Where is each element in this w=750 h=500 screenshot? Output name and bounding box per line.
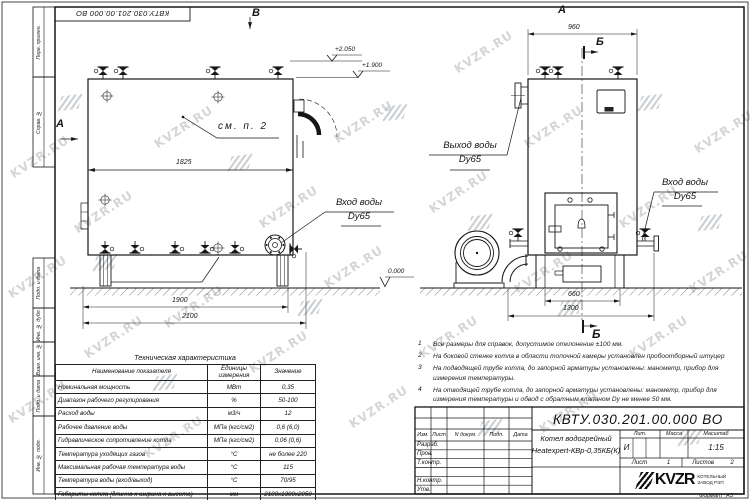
table-row: Рабочее давление водыМПа (кгс/см2)0,6 (6… <box>56 421 316 434</box>
table-row: Температура воды (вход/выход)°С70/95 <box>56 474 316 487</box>
format-cell: ФорматА3 <box>688 493 744 499</box>
table-row: Диапазон рабочего регулирования%50-100 <box>56 394 316 407</box>
elevation-ground: 0.000 <box>388 269 404 276</box>
role-tkontr: Т.контр. <box>417 460 441 466</box>
notes-list: 1Все размеры для справок, допустимое отк… <box>418 340 742 407</box>
company-name: КОТЕЛЬНЫЙ ЗАВОД РЭП <box>697 474 726 485</box>
dim-1825: 1825 <box>176 159 192 166</box>
scale-value: 1:15 <box>688 443 744 452</box>
role-nkontr: Н.контр. <box>417 478 442 484</box>
sheet-label: Лист <box>632 460 647 466</box>
tech-table: Наименование показателяЕдиницы измерения… <box>55 364 316 500</box>
table-row: Максимальная рабочая температура воды°С1… <box>56 461 316 474</box>
note-item: 2На боковой стенке котла в области топоч… <box>418 352 742 362</box>
tech-table-header-row: Наименование показателяЕдиницы измерения… <box>56 365 316 381</box>
dim-2100: 2100 <box>182 313 198 320</box>
margin-stamp: Справ. № <box>33 77 44 167</box>
sheet-value: 1 <box>667 460 670 466</box>
role-razrab: Разраб. <box>417 442 439 448</box>
note-item: 4На отводящей трубе котла, до запорной а… <box>418 386 742 406</box>
margin-stamp: Инв. № подл. <box>33 416 44 494</box>
table-row: Габариты котла (длинна х ширина х высота… <box>56 488 316 500</box>
sheets-label: Листов <box>692 460 714 466</box>
format-value: А3 <box>726 493 733 499</box>
product-name-line2: Heatexpert-КВр-0,35КБ(К) <box>528 446 624 455</box>
elevation-mid: +1.900 <box>362 63 382 70</box>
table-row: Номинальная мощностьМВт0,35 <box>56 381 316 394</box>
role-utv: Утв. <box>417 487 431 493</box>
table-row: Температура уходящих газов°Сне более 220 <box>56 447 316 460</box>
tech-table-title: Техническая характеристика <box>55 353 315 362</box>
view-a-label-left: А <box>56 119 64 130</box>
dim-660: 660 <box>568 291 580 298</box>
doc-number: КВТУ.030.201.00.000 ВО <box>534 409 742 429</box>
margin-stamp: Подп. и дата <box>33 376 44 416</box>
drawing-sheet: KVZR.RU KVZR.RU KVZR.RU KVZR.RU KVZR.RU … <box>0 0 750 500</box>
water-outlet-label: Выход воды Dy65 <box>428 139 512 167</box>
table-row: Гидравлическое сопротивление котлаМПа (к… <box>56 434 316 447</box>
note-item: 1Все размеры для справок, допустимое отк… <box>418 340 742 350</box>
scale-header: Масштаб <box>688 431 744 437</box>
sheets-cell: Листов 2 <box>684 460 742 466</box>
company-logo-cell: KVZR КОТЕЛЬНЫЙ ЗАВОД РЭП <box>621 467 743 493</box>
rev-header-list: Лист <box>431 432 447 438</box>
company-logo-icon <box>635 472 655 489</box>
view-v-label: В <box>252 8 260 19</box>
margin-stamp: Взам. инв. № <box>33 342 44 376</box>
table-row: Расход водым3/ч12 <box>56 407 316 420</box>
sheet-cell: Лист 1 <box>622 460 680 466</box>
margin-stamp: Перв. примен. <box>33 7 44 77</box>
company-name-line2: ЗАВОД РЭП <box>697 480 726 486</box>
dim-960: 960 <box>568 24 580 31</box>
mass-header: Масса <box>660 431 688 437</box>
lit-header: Лит. <box>620 431 660 437</box>
company-logo-text: KVZR <box>655 471 695 489</box>
dim-1900: 1900 <box>172 297 188 304</box>
dim-1300: 1300 <box>563 305 579 312</box>
sheets-value: 2 <box>730 460 733 466</box>
role-prov: Пров. <box>417 451 433 457</box>
margin-stamp: Подп. и дата <box>33 258 44 308</box>
format-label: Формат <box>699 493 722 499</box>
water-inlet-dn: Dy65 <box>650 190 720 204</box>
rev-header-podp: Подп. <box>484 432 509 438</box>
margin-stamp: Инв. № дубл. <box>33 308 44 342</box>
water-inlet-dn: Dy65 <box>322 210 396 224</box>
section-b-label-top: Б <box>596 37 604 48</box>
top-doc-number-stamp: КВТУ.030.201.00.000 ВО <box>55 7 190 21</box>
see-note-label: см. п. 2 <box>218 122 268 132</box>
water-inlet-text: Вход воды <box>322 196 396 210</box>
view-a-label-right: А <box>558 5 566 16</box>
note-item: 3На подводящей трубе котла, до запорной … <box>418 364 742 384</box>
rev-header-ndoc: N докум. <box>447 432 484 438</box>
rev-header-izm: Изм. <box>415 432 431 438</box>
water-outlet-text: Выход воды <box>428 139 512 153</box>
rev-header-data: Дата <box>509 432 532 438</box>
elevation-top: +2.050 <box>335 47 355 54</box>
water-inlet-label-left: Вход воды Dy65 <box>322 196 396 224</box>
section-b-label-bottom: Б <box>592 328 601 340</box>
lit-value: И <box>620 443 633 452</box>
water-inlet-label-right: Вход воды Dy65 <box>650 176 720 204</box>
water-inlet-text: Вход воды <box>650 176 720 190</box>
water-outlet-dn: Dy65 <box>428 153 512 167</box>
product-name-line1: Котел водогрейный <box>532 434 620 443</box>
